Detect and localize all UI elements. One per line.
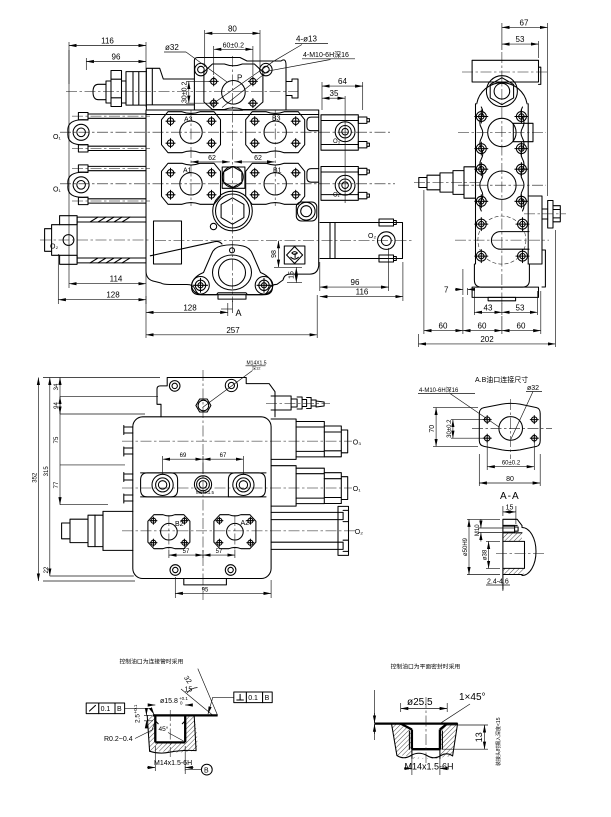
svg-text:B: B xyxy=(117,706,122,713)
svg-text:67: 67 xyxy=(220,453,227,459)
svg-text:0: 0 xyxy=(180,701,183,706)
svg-text:A2: A2 xyxy=(241,520,250,527)
svg-text:60±0.2: 60±0.2 xyxy=(223,42,244,49)
svg-text:75: 75 xyxy=(54,436,60,443)
svg-text:77: 77 xyxy=(54,481,60,488)
svg-text:ø38: ø38 xyxy=(483,549,489,560)
svg-text:45°: 45° xyxy=(159,725,169,733)
svg-text:15: 15 xyxy=(289,271,296,279)
svg-text:ø15.8: ø15.8 xyxy=(160,698,178,705)
svg-text:64: 64 xyxy=(338,77,347,86)
svg-text:A: A xyxy=(236,308,242,318)
svg-text:116: 116 xyxy=(356,288,369,297)
svg-text:4-M10-6H深16: 4-M10-6H深16 xyxy=(419,386,459,394)
svg-text:A3: A3 xyxy=(184,117,193,124)
svg-text:M10: M10 xyxy=(475,524,481,536)
svg-text:60±0.2: 60±0.2 xyxy=(502,461,521,467)
svg-text:O₂: O₂ xyxy=(355,529,363,536)
svg-text:257: 257 xyxy=(226,326,240,335)
svg-text:+0.1: +0.1 xyxy=(133,704,138,713)
svg-text:R0.2~0.4: R0.2~0.4 xyxy=(104,736,133,743)
svg-text:96: 96 xyxy=(112,53,121,62)
svg-text:69: 69 xyxy=(180,453,187,459)
svg-text:O₂: O₂ xyxy=(50,244,58,251)
svg-text:控制油口为连接管时采用: 控制油口为连接管时采用 xyxy=(120,657,184,665)
svg-text:95: 95 xyxy=(202,587,209,593)
svg-text:96: 96 xyxy=(351,278,360,287)
svg-text:O₁: O₁ xyxy=(353,486,361,493)
svg-text:M14X1.5: M14X1.5 xyxy=(196,490,215,495)
svg-text:ø50H9: ø50H9 xyxy=(463,537,469,556)
svg-text:57: 57 xyxy=(216,549,223,555)
svg-text:0.1: 0.1 xyxy=(101,706,111,713)
svg-text:O₁: O₁ xyxy=(333,193,340,199)
svg-text:13: 13 xyxy=(474,732,484,742)
svg-text:128: 128 xyxy=(183,303,197,312)
svg-text:A-A: A-A xyxy=(500,491,520,502)
svg-text:B3: B3 xyxy=(272,116,281,123)
svg-text:114: 114 xyxy=(110,275,123,284)
svg-text:352: 352 xyxy=(32,472,38,483)
svg-text:15: 15 xyxy=(185,687,193,694)
svg-text:43: 43 xyxy=(484,303,493,312)
svg-text:4-ø13: 4-ø13 xyxy=(296,35,317,44)
svg-text:装接头时掆入深度<15: 装接头时掆入深度<15 xyxy=(495,717,502,766)
svg-text:70: 70 xyxy=(429,425,436,433)
svg-text:22: 22 xyxy=(44,566,50,573)
svg-text:2.4-4.6: 2.4-4.6 xyxy=(487,579,509,586)
svg-text:深12: 深12 xyxy=(252,365,261,371)
svg-text:4-M10-6H深16: 4-M10-6H深16 xyxy=(303,50,349,59)
svg-text:ø32: ø32 xyxy=(165,43,179,52)
svg-text:94: 94 xyxy=(54,402,60,409)
svg-text:128: 128 xyxy=(106,291,120,300)
svg-text:M14x1.5-6H: M14x1.5-6H xyxy=(154,760,192,767)
svg-text:80: 80 xyxy=(228,24,237,33)
svg-text:67: 67 xyxy=(520,18,529,27)
svg-text:B: B xyxy=(204,767,209,774)
svg-text:34: 34 xyxy=(54,383,60,390)
svg-text:B1: B1 xyxy=(273,168,282,175)
svg-text:98: 98 xyxy=(271,250,278,258)
svg-text:60: 60 xyxy=(439,322,448,331)
svg-text:80: 80 xyxy=(506,476,514,483)
svg-text:315: 315 xyxy=(44,466,50,477)
svg-text:B2: B2 xyxy=(175,521,184,528)
svg-text:O₁: O₁ xyxy=(53,187,61,194)
svg-text:O₁: O₁ xyxy=(53,134,61,141)
svg-text:116: 116 xyxy=(101,37,114,46)
svg-text:202: 202 xyxy=(480,335,494,344)
svg-text:53: 53 xyxy=(516,303,525,312)
svg-text:7: 7 xyxy=(444,285,449,294)
svg-text:O₃: O₃ xyxy=(333,139,341,145)
svg-text:P: P xyxy=(237,74,242,83)
svg-text:ø25.5: ø25.5 xyxy=(407,697,433,708)
svg-text:35: 35 xyxy=(330,89,339,98)
svg-text:30±0.2: 30±0.2 xyxy=(182,82,189,103)
svg-text:A.B油口连接尺寸: A.B油口连接尺寸 xyxy=(475,375,528,384)
svg-text:B: B xyxy=(265,695,270,702)
svg-text:60: 60 xyxy=(478,322,487,331)
svg-text:1×45°: 1×45° xyxy=(459,692,486,703)
svg-text:62: 62 xyxy=(254,155,262,162)
svg-text:30±0.2: 30±0.2 xyxy=(447,419,453,438)
svg-text:15: 15 xyxy=(506,505,514,512)
svg-text:57: 57 xyxy=(183,549,190,555)
svg-text:控制油口为平面密封时采用: 控制油口为平面密封时采用 xyxy=(391,663,461,671)
svg-text:53: 53 xyxy=(516,35,525,44)
svg-text:0.1: 0.1 xyxy=(248,695,258,702)
svg-text:ø32: ø32 xyxy=(527,385,539,392)
svg-text:2.5: 2.5 xyxy=(135,714,142,723)
svg-text:O₂: O₂ xyxy=(368,233,376,240)
svg-text:32: 32 xyxy=(182,675,192,685)
svg-text:A1: A1 xyxy=(183,168,192,175)
svg-text:60: 60 xyxy=(517,322,526,331)
svg-text:62: 62 xyxy=(208,155,216,162)
svg-text:O₃: O₃ xyxy=(353,440,361,447)
